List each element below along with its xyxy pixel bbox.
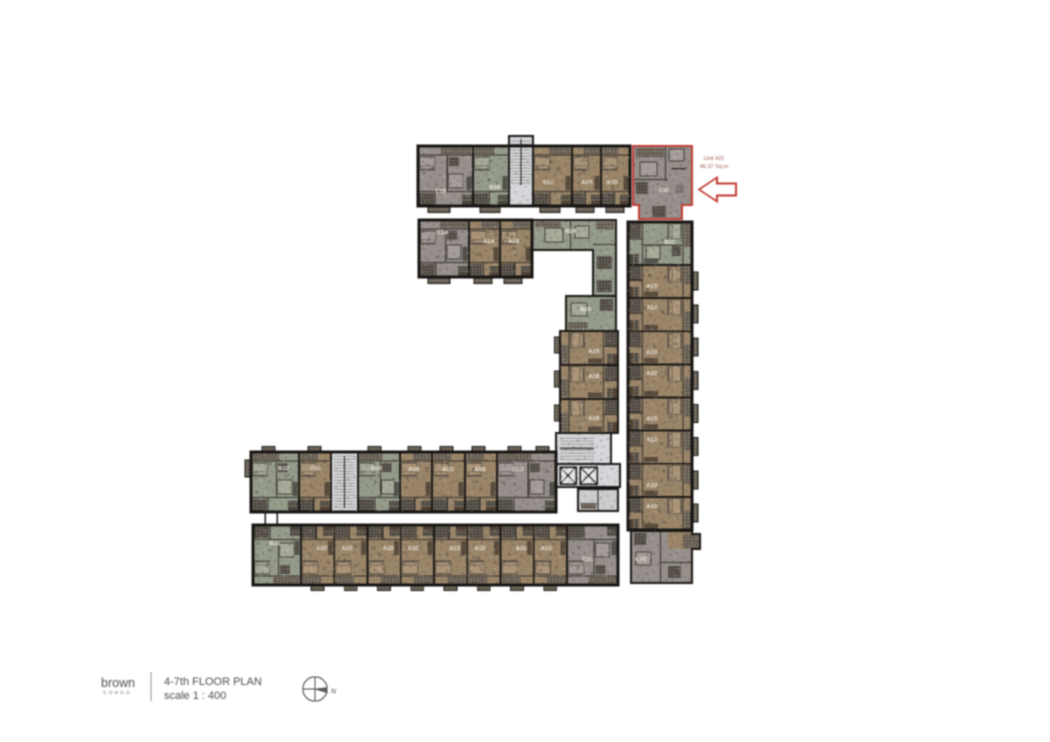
svg-text:scale 1 : 400: scale 1 : 400 (164, 690, 226, 702)
svg-text:brown: brown (101, 676, 135, 690)
svg-text:4-7th FLOOR PLAN: 4-7th FLOOR PLAN (164, 676, 262, 688)
svg-text:46.37 Sq.m: 46.37 Sq.m (700, 164, 729, 170)
svg-text:Unit 421: Unit 421 (704, 156, 725, 162)
svg-text:CONDO: CONDO (103, 690, 132, 695)
